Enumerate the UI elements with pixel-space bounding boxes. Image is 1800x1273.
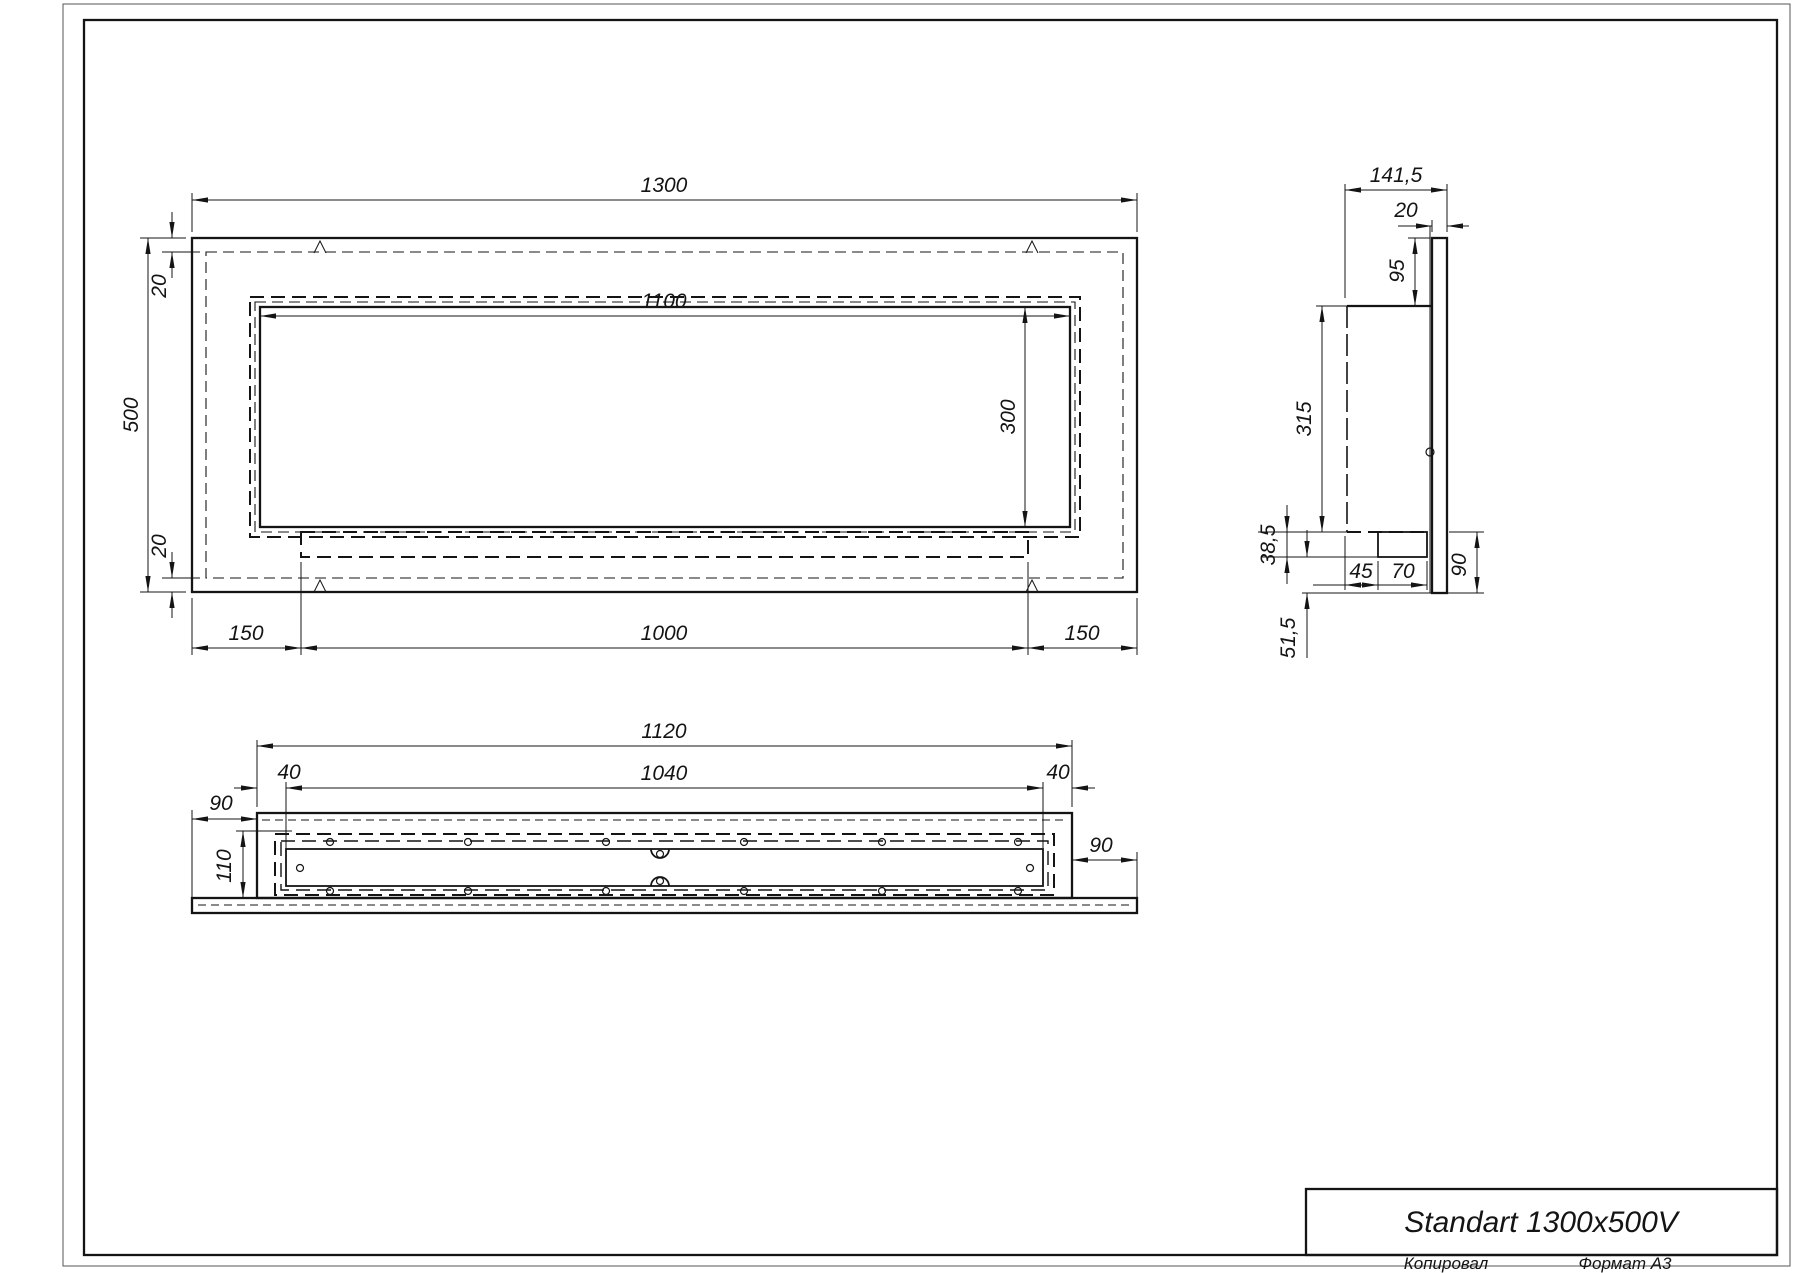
keyhole-slot-mark [314,580,326,592]
keyhole-slot-mark [314,241,326,253]
dim-label-plan-slot-margin-left: 40 [277,761,301,784]
technical-drawing: 1300 500 20 20 1100 300 150 1000 150 [0,0,1800,1273]
front-view: 1300 500 20 20 1100 300 150 1000 150 [120,174,1137,655]
side-view: 141,5 20 95 315 38,5 51,5 45 70 [1257,164,1484,658]
fastener-hole [657,878,664,885]
dim-label-front-bottom-inset: 20 [148,534,171,559]
dim-label-side-panel-top-overhang: 95 [1386,259,1409,283]
dim-label-front-right-margin: 150 [1064,622,1099,645]
fastener-hole-left [297,865,304,872]
fastener-hole [657,851,664,858]
format-label: Формат А3 [1578,1254,1672,1273]
dim-label-plan-flange-right: 90 [1089,834,1113,857]
title-block: Standart 1300x500V Копировал Формат А3 [1306,1189,1777,1273]
product-name: Standart 1300x500V [1404,1206,1681,1239]
dim-label-plan-cavity-depth: 110 [213,849,236,883]
dim-label-front-opening-width: 1100 [641,290,686,313]
dim-label-plan-body-width: 1120 [641,720,686,743]
dim-label-side-tray-depth: 38,5 [1257,524,1280,565]
dim-label-front-center-span: 1000 [641,622,688,645]
fastener-holes-bottom-row [327,888,1022,895]
dim-label-side-panel-thickness: 20 [1393,199,1418,222]
keyhole-slot-mark [1026,241,1038,253]
dim-label-plan-flange-left: 90 [209,792,233,815]
dim-label-front-overall-height: 500 [120,397,143,432]
dim-label-side-panel-bottom-overhang: 90 [1448,553,1471,577]
dim-label-plan-slot-width: 1040 [641,762,688,785]
copied-by-label: Копировал [1404,1254,1489,1273]
dim-label-front-top-inset: 20 [148,274,171,299]
dim-label-side-tray-width: 70 [1391,560,1415,583]
dim-label-side-tray-offset: 45 [1349,560,1373,583]
dim-label-plan-slot-margin-right: 40 [1046,761,1070,784]
sheet-frame [63,4,1790,1266]
dim-label-side-body-height: 315 [1293,401,1316,436]
dim-label-front-overall-width: 1300 [641,174,688,197]
dim-label-front-opening-height: 300 [997,399,1020,434]
fastener-hole-right [1027,865,1034,872]
dim-label-side-below-tray: 51,5 [1277,617,1300,658]
dim-label-front-left-margin: 150 [228,622,263,645]
fastener-holes-top-row [327,839,1022,846]
plan-view: 1120 1040 40 40 90 90 110 [192,720,1137,913]
dim-label-side-overall-depth: 141,5 [1370,164,1423,187]
drawing-sheet: 1300 500 20 20 1100 300 150 1000 150 [0,0,1800,1273]
